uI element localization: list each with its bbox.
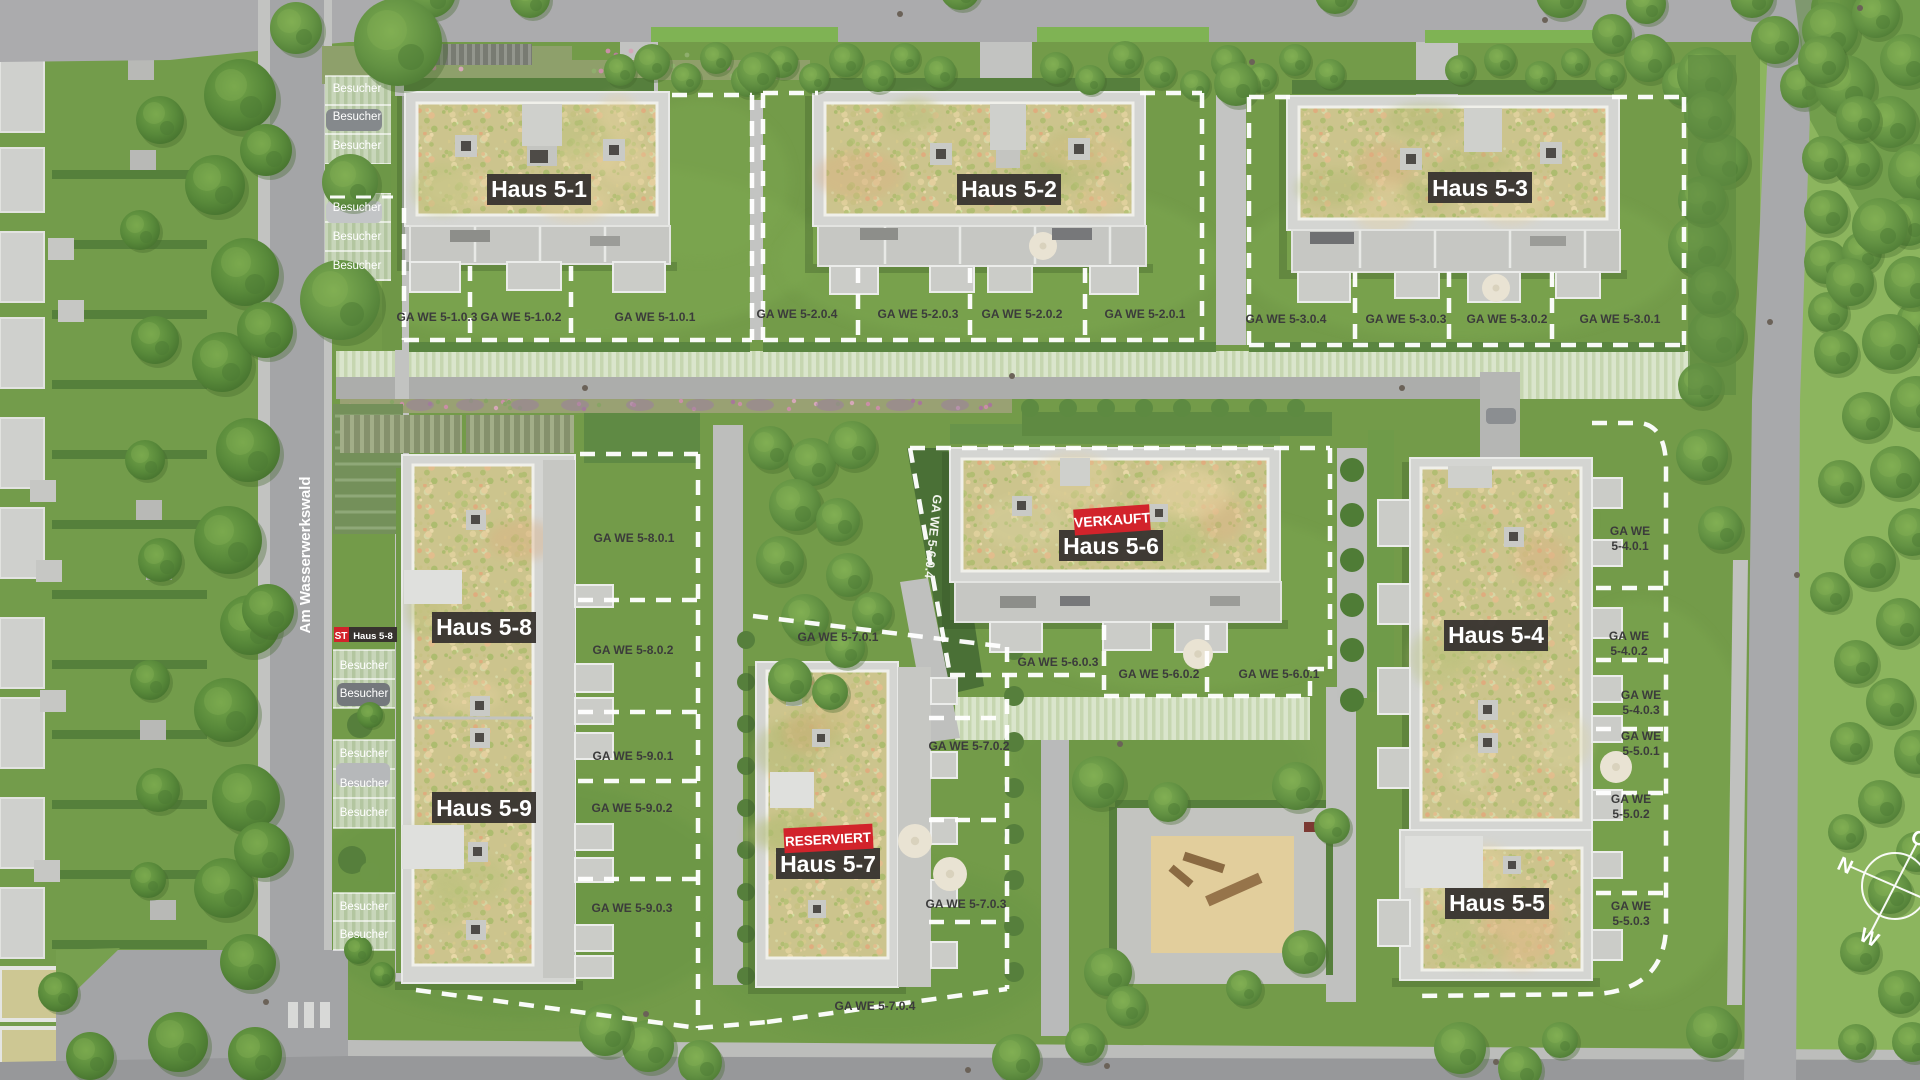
svg-text:GA WE 5-7.0.1: GA WE 5-7.0.1 — [798, 630, 879, 644]
svg-text:GA WE 5-3.0.2: GA WE 5-3.0.2 — [1467, 312, 1548, 326]
svg-text:GA WE 5-3.0.4: GA WE 5-3.0.4 — [1246, 312, 1327, 326]
svg-text:GA WE 5-1.0.2: GA WE 5-1.0.2 — [481, 310, 562, 324]
svg-text:GA WE: GA WE — [1610, 524, 1650, 538]
svg-text:GA WE 5-2.0.4: GA WE 5-2.0.4 — [757, 307, 838, 321]
svg-text:5-5.0.1: 5-5.0.1 — [1622, 744, 1660, 758]
svg-text:GA WE 5-1.0.1: GA WE 5-1.0.1 — [615, 310, 696, 324]
svg-text:Haus 5-5: Haus 5-5 — [1449, 890, 1545, 916]
svg-text:Besucher: Besucher — [340, 748, 389, 760]
svg-text:Haus 5-2: Haus 5-2 — [961, 176, 1057, 202]
svg-text:Haus 5-9: Haus 5-9 — [436, 795, 532, 821]
svg-text:Haus 5-4: Haus 5-4 — [1448, 622, 1544, 648]
svg-text:GA WE 5-7.0.4: GA WE 5-7.0.4 — [835, 999, 916, 1013]
svg-text:ST: ST — [335, 631, 348, 642]
svg-text:GA WE: GA WE — [1621, 729, 1661, 743]
svg-text:Besucher: Besucher — [340, 660, 389, 672]
svg-text:Besucher: Besucher — [333, 202, 382, 214]
svg-text:Besucher: Besucher — [333, 140, 382, 152]
svg-text:GA WE 5-7.0.3: GA WE 5-7.0.3 — [926, 897, 1007, 911]
svg-text:Haus 5-6: Haus 5-6 — [1063, 533, 1159, 559]
svg-text:5-5.0.3: 5-5.0.3 — [1612, 914, 1650, 928]
svg-text:5-4.0.3: 5-4.0.3 — [1622, 703, 1660, 717]
svg-text:GA WE: GA WE — [1611, 899, 1651, 913]
svg-text:GA WE 5-9.0.2: GA WE 5-9.0.2 — [592, 801, 673, 815]
svg-text:GA WE 5-3.0.1: GA WE 5-3.0.1 — [1580, 312, 1661, 326]
svg-text:GA WE 5-2.0.1: GA WE 5-2.0.1 — [1105, 307, 1186, 321]
svg-text:GA WE 5-6.0.3: GA WE 5-6.0.3 — [1018, 655, 1099, 669]
svg-text:Haus 5-7: Haus 5-7 — [780, 851, 876, 877]
svg-text:GA WE: GA WE — [1621, 688, 1661, 702]
svg-text:GA WE 5-7.0.2: GA WE 5-7.0.2 — [929, 739, 1010, 753]
svg-text:Haus 5-8: Haus 5-8 — [353, 631, 393, 642]
svg-text:Besucher: Besucher — [340, 807, 389, 819]
svg-text:GA WE 5-6.0.2: GA WE 5-6.0.2 — [1119, 667, 1200, 681]
svg-text:GA WE 5-1.0.3: GA WE 5-1.0.3 — [397, 310, 478, 324]
svg-text:Besucher: Besucher — [333, 83, 382, 95]
svg-text:GA WE 5-8.0.1: GA WE 5-8.0.1 — [594, 531, 675, 545]
svg-text:GA WE: GA WE — [1611, 792, 1651, 806]
svg-text:Besucher: Besucher — [340, 688, 389, 700]
svg-text:5-4.0.1: 5-4.0.1 — [1611, 539, 1649, 553]
svg-text:GA WE 5-2.0.3: GA WE 5-2.0.3 — [878, 307, 959, 321]
svg-text:GA WE 5-6.0.1: GA WE 5-6.0.1 — [1239, 667, 1320, 681]
svg-text:Am Wasserwerkswald: Am Wasserwerkswald — [297, 476, 314, 633]
svg-text:5-5.0.2: 5-5.0.2 — [1612, 807, 1650, 821]
svg-text:5-4.0.2: 5-4.0.2 — [1610, 644, 1648, 658]
svg-text:Besucher: Besucher — [340, 929, 389, 941]
svg-text:GA WE 5-3.0.3: GA WE 5-3.0.3 — [1366, 312, 1447, 326]
svg-text:Haus 5-8: Haus 5-8 — [436, 614, 532, 640]
svg-text:Besucher: Besucher — [333, 231, 382, 243]
svg-text:Besucher: Besucher — [333, 111, 382, 123]
svg-text:GA WE 5-9.0.3: GA WE 5-9.0.3 — [592, 901, 673, 915]
svg-text:GA WE: GA WE — [1609, 629, 1649, 643]
svg-text:Haus 5-3: Haus 5-3 — [1432, 175, 1528, 201]
svg-text:Besucher: Besucher — [333, 260, 382, 272]
svg-text:Besucher: Besucher — [340, 778, 389, 790]
svg-text:Besucher: Besucher — [340, 901, 389, 913]
svg-text:GA WE 5-2.0.2: GA WE 5-2.0.2 — [982, 307, 1063, 321]
svg-text:Haus 5-1: Haus 5-1 — [491, 176, 587, 202]
svg-text:GA WE 5-9.0.1: GA WE 5-9.0.1 — [593, 749, 674, 763]
svg-text:GA WE 5-8.0.2: GA WE 5-8.0.2 — [593, 643, 674, 657]
